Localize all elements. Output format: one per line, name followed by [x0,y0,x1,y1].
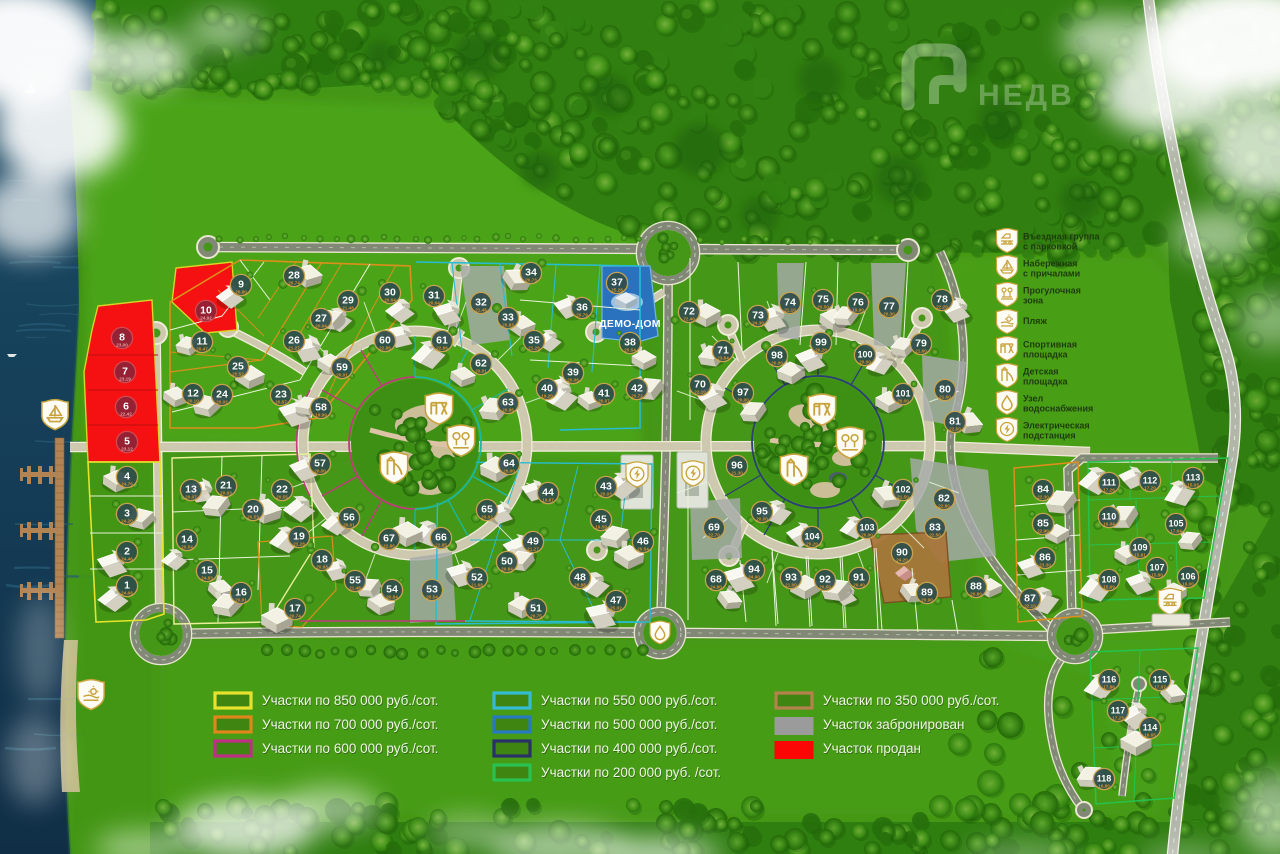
svg-text:20,20: 20,20 [815,348,827,353]
svg-text:Электрическая: Электрическая [1023,421,1090,431]
svg-text:108: 108 [1101,575,1116,585]
svg-text:110: 110 [1102,512,1117,522]
svg-text:20,06: 20,06 [567,378,579,383]
svg-text:107: 107 [1149,563,1164,573]
svg-text:21,50: 21,50 [897,495,909,500]
svg-text:17,23: 17,23 [1112,716,1124,721]
svg-text:20,53: 20,53 [247,515,259,520]
svg-text:16,00: 16,00 [1182,582,1194,587]
svg-text:20,74: 20,74 [289,614,301,619]
svg-text:зона: зона [1023,296,1044,306]
svg-text:15,80: 15,80 [1151,573,1163,578]
svg-text:25,28: 25,28 [611,288,623,293]
svg-text:20,00: 20,00 [314,469,326,474]
svg-text:118: 118 [1097,774,1112,784]
svg-text:площадка: площадка [1023,350,1068,360]
svg-text:20,64: 20,64 [428,301,440,306]
svg-text:20,54: 20,54 [426,595,438,600]
svg-text:25,02: 25,02 [610,606,622,611]
svg-text:20,52: 20,52 [232,372,244,377]
svg-text:20,74: 20,74 [288,281,300,286]
svg-text:ДЕМО-ДОМ: ДЕМО-ДОМ [599,318,661,330]
svg-text:24,46: 24,46 [121,557,133,562]
svg-text:24,66: 24,66 [121,591,133,596]
svg-text:20,50: 20,50 [817,305,829,310]
svg-text:17,07: 17,07 [1154,685,1166,690]
svg-text:Прогулочная: Прогулочная [1023,286,1081,296]
svg-text:20,73: 20,73 [525,278,537,283]
svg-text:22,10: 22,10 [694,390,706,395]
svg-text:21,48: 21,48 [349,586,361,591]
svg-text:19,59: 19,59 [595,525,607,530]
svg-text:20,00: 20,00 [503,469,515,474]
svg-text:24,83: 24,83 [201,576,213,581]
svg-text:20,02: 20,02 [216,400,228,405]
svg-text:20,84: 20,84 [386,595,398,600]
svg-text:113: 113 [1186,473,1201,483]
svg-text:20,64: 20,64 [384,298,396,303]
svg-text:21,30: 21,30 [731,471,743,476]
svg-text:19,20: 19,20 [541,394,553,399]
svg-text:Участки по 600 000 руб./сот.: Участки по 600 000 руб./сот. [262,741,438,756]
svg-text:20,54: 20,54 [624,348,636,353]
svg-text:21,27: 21,27 [527,547,539,552]
svg-text:20,01: 20,01 [475,369,487,374]
svg-text:20,93: 20,93 [220,491,232,496]
svg-text:24,76: 24,76 [121,482,133,487]
svg-text:20,72: 20,72 [631,394,643,399]
svg-text:20,00: 20,00 [859,360,871,365]
svg-text:23,84: 23,84 [717,356,729,361]
svg-text:20,79: 20,79 [576,313,588,318]
svg-text:Набережная: Набережная [1023,259,1078,269]
svg-text:20,55: 20,55 [276,495,288,500]
svg-text:Участки по 700 000 руб./сот.: Участки по 700 000 руб./сот. [262,717,438,732]
svg-text:117: 117 [1111,706,1126,716]
svg-text:20,80: 20,80 [970,592,982,597]
svg-text:72,40: 72,40 [683,317,695,322]
svg-text:20,00: 20,00 [756,517,768,522]
svg-text:20,87: 20,87 [275,400,287,405]
svg-text:22,86: 22,86 [383,544,395,549]
svg-text:20,54: 20,54 [181,545,193,550]
svg-text:24,92: 24,92 [200,316,212,321]
svg-text:102: 102 [895,485,910,495]
svg-text:24,30: 24,30 [752,321,764,326]
svg-text:20,50: 20,50 [819,585,831,590]
svg-text:21,26: 21,26 [528,346,540,351]
svg-text:22,86: 22,86 [379,346,391,351]
svg-text:22,85: 22,85 [435,543,447,548]
svg-text:100: 100 [857,350,872,360]
svg-text:115: 115 [1153,675,1168,685]
svg-text:16,65: 16,65 [1144,733,1156,738]
svg-text:19,99: 19,99 [315,413,327,418]
svg-text:20,80: 20,80 [235,290,247,295]
svg-text:24,90: 24,90 [748,575,760,580]
svg-text:112: 112 [1143,476,1158,486]
svg-text:22,20: 22,20 [936,305,948,310]
svg-text:Узел: Узел [1023,394,1044,404]
svg-text:подстанция: подстанция [1023,431,1076,441]
svg-text:22,80: 22,80 [938,504,950,509]
svg-text:103: 103 [859,523,874,533]
svg-text:Участки по 400 000 руб./сот.: Участки по 400 000 руб./сот. [541,741,717,756]
svg-text:21,60: 21,60 [915,349,927,354]
svg-text:19,90: 19,90 [852,308,864,313]
svg-text:22,10: 22,10 [1024,604,1036,609]
svg-text:21,60: 21,60 [939,395,951,400]
svg-text:НЕДВ: НЕДВ [978,79,1075,112]
svg-text:20,00: 20,00 [897,399,909,404]
svg-text:20,84: 20,84 [501,567,513,572]
svg-text:20,01: 20,01 [343,523,355,528]
svg-text:21,10: 21,10 [784,308,796,313]
svg-text:20,10: 20,10 [187,399,199,404]
svg-text:20,93: 20,93 [316,565,328,570]
svg-text:15,03: 15,03 [1187,483,1199,488]
svg-text:20,83: 20,83 [502,323,514,328]
svg-text:21,48: 21,48 [475,308,487,313]
svg-text:114: 114 [1143,723,1158,733]
svg-text:23,30: 23,30 [1039,563,1051,568]
svg-text:20,00: 20,00 [737,398,749,403]
svg-text:площадка: площадка [1023,377,1068,387]
svg-text:20,81: 20,81 [235,598,247,603]
svg-text:Участок продан: Участок продан [823,741,921,756]
svg-text:20,47: 20,47 [196,347,208,352]
svg-text:Участки по 500 000 руб./сот.: Участки по 500 000 руб./сот. [541,717,717,732]
svg-text:20,07: 20,07 [185,495,197,500]
svg-text:22,30: 22,30 [1037,495,1049,500]
svg-text:15,69: 15,69 [1103,585,1115,590]
svg-text:Пляж: Пляж [1023,316,1047,326]
svg-text:20,07: 20,07 [598,399,610,404]
svg-text:20,02: 20,02 [481,515,493,520]
svg-text:Участки по 200 000 руб. /сот.: Участки по 200 000 руб. /сот. [541,765,721,780]
svg-text:20,90: 20,90 [921,598,933,603]
svg-text:20,86: 20,86 [502,408,514,413]
svg-text:15,81: 15,81 [1134,553,1146,558]
svg-text:20,30: 20,30 [883,312,895,317]
svg-text:21,48: 21,48 [342,306,354,311]
svg-text:28,88: 28,88 [574,583,586,588]
svg-text:22,50: 22,50 [929,533,941,538]
svg-text:16,80: 16,80 [1098,784,1110,789]
svg-text:21,28: 21,28 [293,542,305,547]
svg-text:Детская: Детская [1023,367,1058,377]
svg-text:21,68: 21,68 [471,583,483,588]
svg-text:22,50: 22,50 [949,427,961,432]
svg-text:16,04: 16,04 [1103,522,1115,527]
svg-text:21,27: 21,27 [288,346,300,351]
svg-text:Въездная группа: Въездная группа [1023,232,1100,242]
svg-text:20,00: 20,00 [771,361,783,366]
svg-text:20,00: 20,00 [861,533,873,538]
svg-text:111: 111 [1102,478,1116,488]
svg-text:20,20: 20,20 [806,542,818,547]
svg-text:20,04: 20,04 [315,324,327,329]
svg-text:104: 104 [804,532,819,542]
svg-text:101: 101 [895,389,910,399]
svg-text:22,42: 22,42 [120,412,132,417]
svg-text:20,54: 20,54 [637,547,649,552]
svg-text:водоснабжения: водоснабжения [1023,404,1093,414]
svg-text:Спортивная: Спортивная [1023,340,1077,350]
svg-text:20,01: 20,01 [336,373,348,378]
svg-text:17,86: 17,86 [1103,685,1115,690]
svg-text:17,20: 17,20 [1144,486,1156,491]
svg-text:105: 105 [1168,519,1183,529]
svg-text:21,00: 21,00 [785,583,797,588]
svg-text:17,26: 17,26 [1103,488,1115,493]
svg-text:22,86: 22,86 [436,346,448,351]
svg-text:Участок забронирован: Участок забронирован [823,717,965,732]
svg-text:109: 109 [1132,543,1147,553]
svg-text:23,12: 23,12 [121,447,133,452]
svg-text:116: 116 [1102,675,1117,685]
svg-text:с причалами: с причалами [1023,269,1080,279]
svg-text:20,75: 20,75 [530,614,542,619]
svg-text:23,19: 23,19 [119,377,131,382]
svg-text:20,40: 20,40 [853,583,865,588]
svg-text:24,20: 24,20 [121,519,133,524]
svg-text:24,20: 24,20 [896,558,908,563]
svg-text:17,64: 17,64 [1170,529,1182,534]
svg-text:Участки по 850 000 руб./сот.: Участки по 850 000 руб./сот. [262,693,438,708]
svg-text:22,70: 22,70 [708,533,720,538]
svg-text:22,90: 22,90 [1037,529,1049,534]
svg-text:106: 106 [1180,572,1195,582]
svg-text:с парковкой: с парковкой [1023,242,1077,252]
svg-text:20,03: 20,03 [600,492,612,497]
svg-text:23,00: 23,00 [116,343,128,348]
svg-text:24,80: 24,80 [710,585,722,590]
svg-text:Участки по 350 000 руб./сот.: Участки по 350 000 руб./сот. [823,693,999,708]
svg-text:Участки по 550 000 руб./сот.: Участки по 550 000 руб./сот. [541,693,717,708]
svg-text:19,87: 19,87 [542,498,554,503]
